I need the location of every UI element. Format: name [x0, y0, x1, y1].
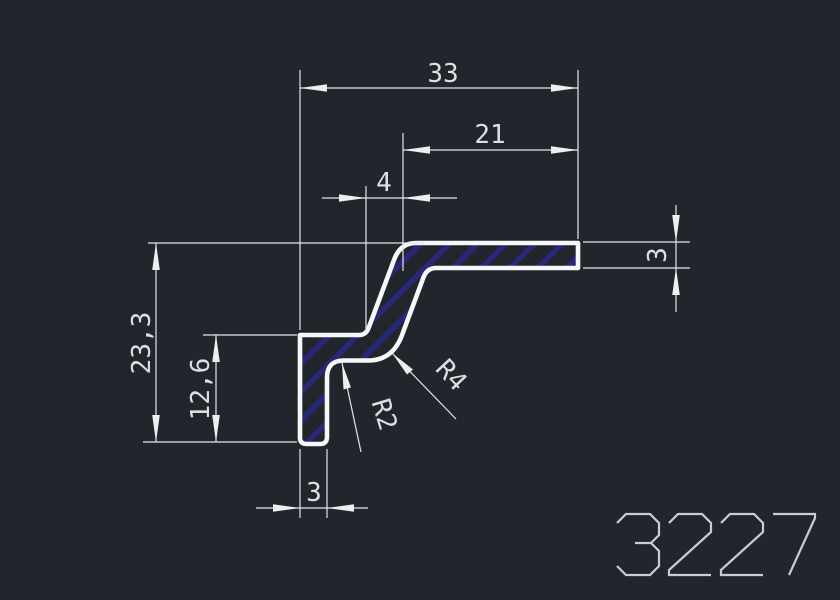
dimension-text: 12,6	[186, 358, 216, 421]
arrowhead	[392, 353, 413, 375]
dim-overall-height: 23,3	[127, 243, 160, 442]
dim-overall-width: 33	[300, 59, 578, 92]
radius-text: R2	[365, 395, 403, 434]
arrowhead-right	[551, 146, 578, 154]
arrowhead-top	[672, 215, 680, 242]
arrowhead-left	[300, 84, 327, 92]
dim-slant-run: 4	[322, 168, 457, 202]
part-number-glyph	[669, 514, 711, 575]
dimension-text: 4	[376, 168, 392, 198]
dimension-text: 3	[643, 247, 673, 263]
arrowhead-right	[403, 194, 430, 202]
arrowhead-left	[403, 146, 430, 154]
arrowhead-right	[327, 504, 354, 512]
dim-leg-height: 12,6	[186, 335, 220, 442]
dim-flange-length: 21	[403, 120, 578, 154]
part-number	[617, 514, 815, 575]
dim-flange-thickness: 3	[643, 205, 680, 312]
leader-fillet-small: R2	[342, 363, 403, 452]
arrowhead-right	[551, 84, 578, 92]
dim-leg-thickness: 3	[256, 478, 368, 512]
arrowhead-left	[339, 194, 366, 202]
arrowhead-top	[152, 243, 160, 270]
arrowhead	[342, 363, 351, 390]
dimension-text: 23,3	[127, 312, 157, 375]
radius-text: R4	[429, 354, 472, 397]
part-number-glyph	[721, 514, 763, 575]
arrowhead-left	[273, 504, 300, 512]
profile-drawing: 33 21 4 23,3 12,6 3 3	[0, 0, 840, 600]
dimension-text: 33	[427, 59, 458, 89]
dimension-text: 3	[306, 478, 322, 508]
dimension-text: 21	[474, 120, 505, 150]
part-number-glyph	[617, 514, 659, 575]
arrowhead-bottom	[672, 268, 680, 295]
profile-section-shape	[300, 243, 578, 444]
arrowhead-bottom	[152, 415, 160, 442]
leader-fillet-large: R4	[392, 353, 472, 419]
part-number-glyph	[773, 514, 815, 575]
cad-drawing-canvas: 33 21 4 23,3 12,6 3 3	[0, 0, 840, 600]
